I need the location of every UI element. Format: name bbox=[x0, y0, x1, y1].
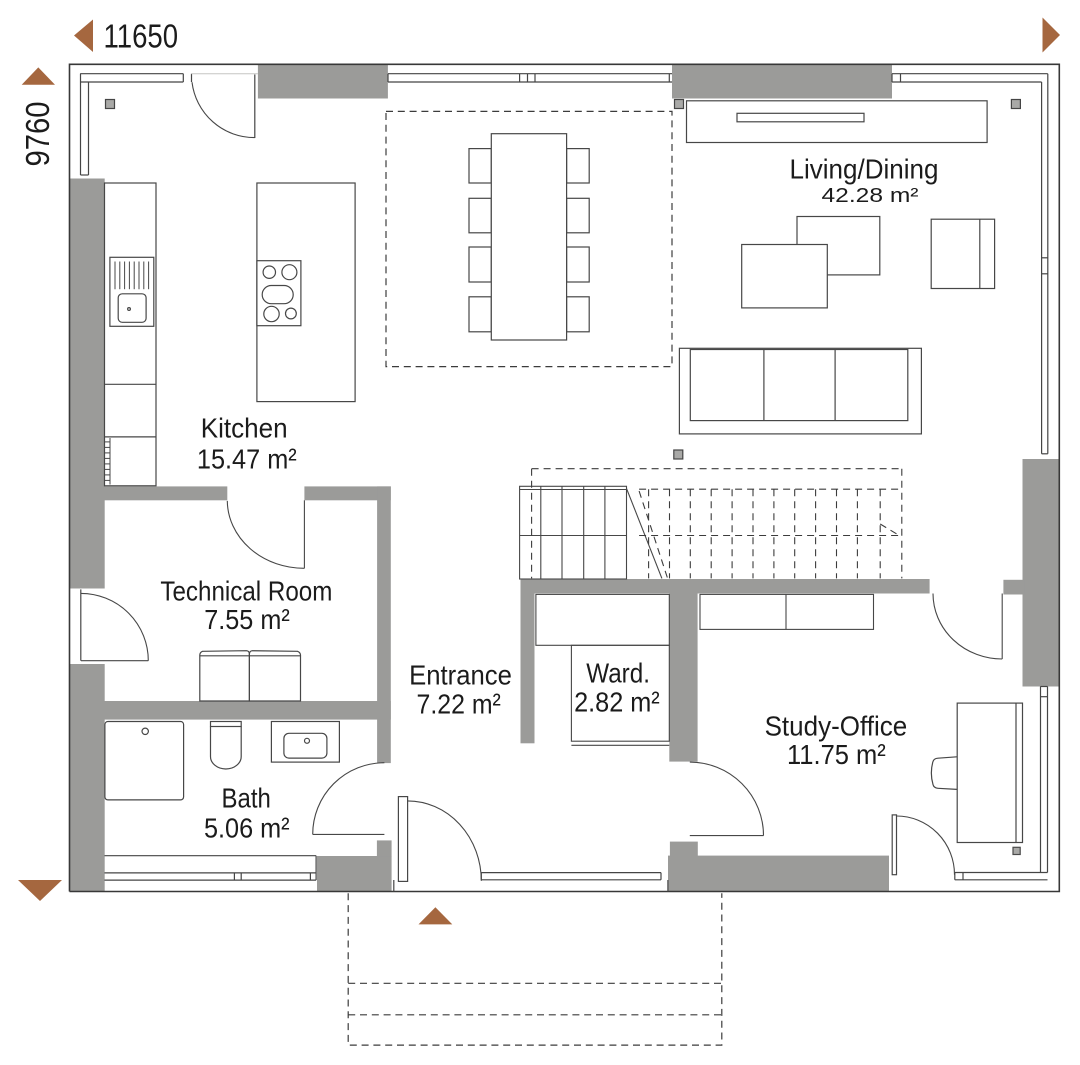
svg-text:5.06 m²: 5.06 m² bbox=[204, 813, 290, 844]
svg-text:Ward.: Ward. bbox=[586, 658, 650, 689]
svg-text:Bath: Bath bbox=[222, 783, 271, 814]
svg-text:Technical Room: Technical Room bbox=[160, 576, 332, 607]
svg-text:2.82 m²: 2.82 m² bbox=[574, 687, 660, 718]
svg-text:Living/Dining: Living/Dining bbox=[790, 153, 939, 184]
svg-text:42.28 m²: 42.28 m² bbox=[822, 185, 919, 207]
svg-text:15.47 m²: 15.47 m² bbox=[197, 444, 297, 475]
svg-text:11650: 11650 bbox=[104, 18, 179, 55]
svg-text:Kitchen: Kitchen bbox=[201, 412, 288, 443]
svg-text:9760: 9760 bbox=[19, 102, 56, 167]
svg-text:7.55 m²: 7.55 m² bbox=[204, 604, 290, 635]
svg-text:7.22 m²: 7.22 m² bbox=[417, 689, 501, 720]
svg-text:11.75 m²: 11.75 m² bbox=[787, 739, 886, 770]
svg-text:Study-Office: Study-Office bbox=[765, 710, 908, 741]
svg-text:Entrance: Entrance bbox=[409, 659, 512, 690]
